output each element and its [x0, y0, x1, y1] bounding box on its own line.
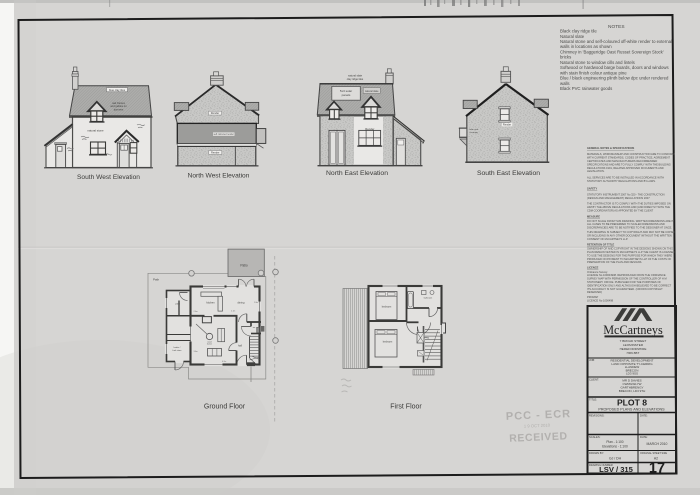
svg-text:bedroom: bedroom — [383, 341, 392, 344]
svg-text:kitchen: kitchen — [206, 301, 215, 305]
svg-text:PREPARATION OF THE PLAN AND DE: PREPARATION OF THE PLAN AND DESIGNS. — [587, 260, 642, 264]
svg-text:WITH CURRENT STANDARDS, CODES: WITH CURRENT STANDARDS, CODES OF PRACTIC… — [587, 156, 670, 160]
svg-text:IDENTIFICATION ONLY AND ALTHOU: IDENTIFICATION ONLY AND ALTHOUGH BELIEVE… — [587, 283, 672, 287]
svg-text:THE CONTRACTOR IS TO COMPLY WI: THE CONTRACTOR IS TO COMPLY WITH THE DUT… — [587, 202, 671, 206]
svg-text:DO NOT SCALE FROM THIS DRAWING: DO NOT SCALE FROM THIS DRAWING. WRITTEN … — [587, 219, 674, 223]
svg-text:DATE:: DATE: — [640, 435, 648, 439]
svg-text:STATUTORY INSTRUMENT 2007 No 3: STATUTORY INSTRUMENT 2007 No 320 - THE C… — [587, 192, 665, 196]
svg-text:2.1m: 2.1m — [231, 311, 236, 313]
svg-text:McCartneys: McCartneys — [603, 323, 663, 337]
svg-text:burner: burner — [207, 344, 213, 346]
svg-text:PROMAP: PROMAP — [587, 295, 599, 299]
svg-text:PRODUCED ON PAYMENT TO McCARTN: PRODUCED ON PAYMENT TO McCARTNEYS LLP OF… — [587, 257, 672, 261]
svg-text:MEASURE: MEASURE — [587, 215, 600, 219]
svg-text:ORIGINAL SHEET SIZE: ORIGINAL SHEET SIZE — [640, 452, 667, 455]
svg-text:STATUTORY AUTHORITY REGULATION: STATUTORY AUTHORITY REGULATIONS AND BY-L… — [587, 179, 656, 183]
svg-text:MARCH 2010: MARCH 2010 — [647, 442, 668, 446]
svg-text:Black PVC rainwater goods: Black PVC rainwater goods — [560, 86, 612, 91]
svg-text:natural stone: natural stone — [87, 129, 104, 133]
svg-text:Chimney in 'Baggeridge Oast Ru: Chimney in 'Baggeridge Oast Russet Sover… — [560, 49, 664, 54]
svg-text:GENERAL NOTES & SPECIFICATIONS: GENERAL NOTES & SPECIFICATIONS — [587, 146, 634, 150]
svg-text:Plan - 1:100: Plan - 1:100 — [606, 440, 623, 444]
svg-text:DISCREPANCIES ARE TO BE NOTIFI: DISCREPANCIES ARE TO BE NOTIFIED TO THE … — [587, 226, 672, 230]
svg-text:(DESIGN AND MANAGEMENT) REGULA: (DESIGN AND MANAGEMENT) REGULATIONS 2007 — [587, 196, 650, 200]
svg-text:JOB:: JOB: — [589, 358, 595, 362]
svg-text:clay ridge tiles: clay ridge tiles — [347, 77, 364, 81]
svg-text:3.6m: 3.6m — [194, 351, 199, 353]
svg-text:LICENCE No 1000498: LICENCE No 1000498 — [587, 299, 614, 303]
svg-text:bedroom: bedroom — [382, 306, 391, 309]
svg-text:TO USE THE DESIGNS FOR THE PUR: TO USE THE DESIGNS FOR THE PURPOSE FOR W… — [587, 253, 672, 257]
svg-text:self coloured render: self coloured render — [214, 133, 235, 136]
svg-text:1.8m: 1.8m — [254, 302, 259, 304]
svg-text:LICENCE No 100004908. REPRODUC: LICENCE No 100004908. REPRODUCED FROM TH… — [587, 273, 666, 277]
svg-text:First Floor: First Floor — [390, 404, 422, 411]
svg-text:2.4m: 2.4m — [194, 311, 199, 313]
svg-text:CERTIFICATES AND MANUFACTURERS: CERTIFICATES AND MANUFACTURERS RECOMMEND… — [587, 159, 657, 163]
svg-text:ITS ACCURACY IS NOT GUARANTEED: ITS ACCURACY IS NOT GUARANTEED. (CROWN C… — [587, 287, 663, 291]
svg-text:OWNERSHIP OF AND COPYRIGHT IN: OWNERSHIP OF AND COPYRIGHT IN THE DESIGN… — [587, 247, 673, 251]
svg-text:PLOT 8: PLOT 8 — [617, 397, 647, 407]
svg-text:TITLE:: TITLE: — [589, 397, 597, 401]
svg-text:Ordnance Survey:: Ordnance Survey: — [587, 270, 608, 274]
svg-text:Path: Path — [153, 278, 160, 282]
svg-text:BRECON, LD3 9TH: BRECON, LD3 9TH — [619, 389, 646, 393]
svg-text:4.2m: 4.2m — [222, 361, 227, 363]
svg-text:hall: hall — [238, 345, 242, 348]
svg-text:South West Elevation: South West Elevation — [77, 174, 140, 181]
svg-text:LICENCE: LICENCE — [587, 266, 599, 270]
svg-text:STATIONERY OFFICE. PUBLISHED F: STATIONERY OFFICE. PUBLISHED FOR THE PUR… — [587, 280, 661, 284]
svg-text:ALL CASES TO BE PREFERRED TO S: ALL CASES TO BE PREFERRED TO SCALED DIME… — [587, 222, 665, 226]
svg-text:Blue / black engineering plint: Blue / black engineering plinth below dp… — [560, 76, 669, 81]
svg-text:CDM COORDINATOR) AS APPOINTED: CDM COORDINATOR) AS APPOINTED BY THE CLI… — [587, 208, 654, 212]
svg-text:PLAN REMAIN VESTED IN McCARTNE: PLAN REMAIN VESTED IN McCARTNEYS LLP THE… — [587, 250, 675, 254]
svg-text:dormers: dormers — [114, 107, 124, 111]
svg-text:REVISIONS:: REVISIONS: — [589, 413, 605, 417]
svg-text:Black clay ridge tile: Black clay ridge tile — [560, 28, 597, 33]
svg-text:blue clay tiles: blue clay tiles — [109, 88, 126, 92]
svg-text:LEGISLATION.: LEGISLATION. — [587, 169, 605, 173]
svg-text:THIS DRAWING IS SUBJECT TO COP: THIS DRAWING IS SUBJECT TO COPYRIGHT AND… — [587, 230, 675, 234]
svg-text:SPECIFICATIONS AND ARE TO FULL: SPECIFICATIONS AND ARE TO FULLY COMPLY W… — [587, 162, 671, 166]
svg-text:Elevations - 1:100: Elevations - 1:100 — [602, 445, 628, 449]
svg-text:Render: Render — [211, 151, 220, 155]
svg-text:North West Elevation: North West Elevation — [188, 173, 250, 180]
svg-text:Patio: Patio — [240, 264, 247, 268]
svg-text:NOTES: NOTES — [608, 24, 625, 30]
svg-text:panels: panels — [342, 93, 351, 97]
svg-text:Ground Floor: Ground Floor — [204, 404, 246, 411]
svg-text:covering: covering — [470, 131, 479, 134]
svg-text:REGULATIONS 1991, RELATED APPR: REGULATIONS 1991, RELATED APPROVED DOCUM… — [587, 166, 664, 170]
svg-text:MATERIALS, WORKMANSHIP AND CON: MATERIALS, WORKMANSHIP AND CONSTRUCTION … — [587, 152, 675, 156]
svg-text:dining: dining — [238, 301, 245, 305]
svg-text:RESERVED): RESERVED) — [587, 290, 602, 294]
svg-text:RETENTION OF TITLE: RETENTION OF TITLE — [587, 242, 615, 246]
svg-text:HIM BY THE ABOVE REGULATIONS A: HIM BY THE ABOVE REGULATIONS AND (AND DI… — [587, 205, 670, 209]
svg-text:North East Elevation: North East Elevation — [326, 170, 388, 177]
svg-text:DRAWN BY:: DRAWN BY: — [589, 451, 604, 455]
svg-text:Render: Render — [503, 124, 511, 127]
svg-text:CONSENT OF McCARTNEYS LLP.: CONSENT OF McCARTNEYS LLP. — [587, 237, 628, 241]
svg-text:ALL SERVICES ARE TO BE INSTALL: ALL SERVICES ARE TO BE INSTALLED IN ACCO… — [587, 175, 664, 179]
svg-text:natural slate: natural slate — [365, 90, 379, 93]
svg-text:SURVEY MAP WITH PERMISSION OF: SURVEY MAP WITH PERMISSION OF THE CONTRO… — [587, 277, 667, 281]
svg-text:bathroom: bathroom — [424, 297, 433, 300]
svg-text:GJ / DH: GJ / DH — [609, 457, 622, 461]
svg-text:SAFETY: SAFETY — [587, 186, 598, 190]
svg-text:PROPOSED PLANS AND ELEVATIONS: PROPOSED PLANS AND ELEVATIONS — [598, 407, 665, 411]
svg-text:OR INCLUDING IN ANY OTHER DOCU: OR INCLUDING IN ANY OTHER DOCUMENT WITHO… — [587, 234, 672, 238]
svg-text:CLIENT:: CLIENT: — [589, 377, 599, 381]
svg-text:Render: Render — [211, 111, 220, 115]
svg-text:larder /: larder / — [174, 346, 181, 349]
svg-text:fuel store: fuel store — [173, 349, 183, 352]
svg-text:HR6 8BT: HR6 8BT — [627, 351, 640, 355]
svg-text:SCALES:: SCALES: — [589, 435, 601, 439]
svg-text:17: 17 — [649, 461, 665, 477]
svg-text:Natural stone to window cills: Natural stone to window cills and lintel… — [560, 60, 635, 65]
svg-text:South East Elevation: South East Elevation — [477, 170, 540, 177]
svg-text:DATE:: DATE: — [640, 413, 648, 417]
svg-text:Natural slate: Natural slate — [560, 34, 585, 39]
svg-text:RECEIVED: RECEIVED — [509, 430, 568, 445]
svg-text:lean roof: lean roof — [470, 128, 479, 131]
svg-text:LD3 9SS: LD3 9SS — [626, 372, 638, 376]
svg-text:walls in locations as shown: walls in locations as shown — [560, 44, 612, 49]
svg-text:LSV / 315: LSV / 315 — [599, 465, 634, 474]
